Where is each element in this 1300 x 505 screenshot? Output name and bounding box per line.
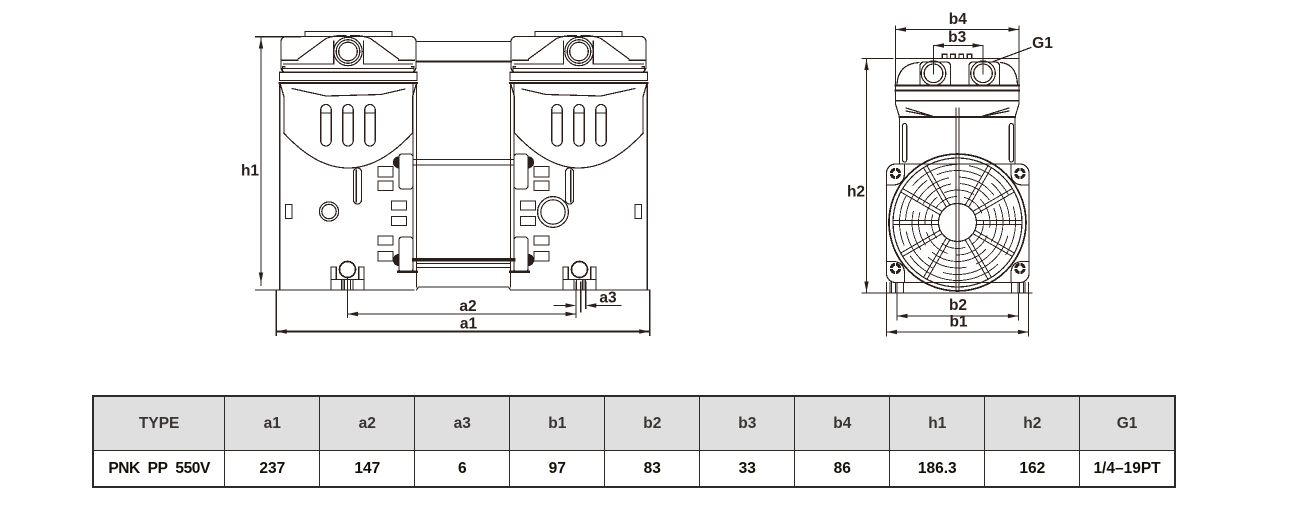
svg-text:b4: b4 — [949, 11, 967, 28]
svg-text:h1: h1 — [241, 163, 259, 180]
svg-text:b3: b3 — [948, 29, 966, 46]
svg-text:a2: a2 — [459, 298, 476, 315]
svg-text:a3: a3 — [599, 290, 617, 307]
svg-text:a1: a1 — [460, 316, 478, 333]
svg-text:b1: b1 — [949, 314, 967, 331]
svg-text:G1: G1 — [1032, 35, 1053, 52]
svg-text:h2: h2 — [847, 184, 865, 201]
svg-text:b2: b2 — [949, 297, 967, 314]
